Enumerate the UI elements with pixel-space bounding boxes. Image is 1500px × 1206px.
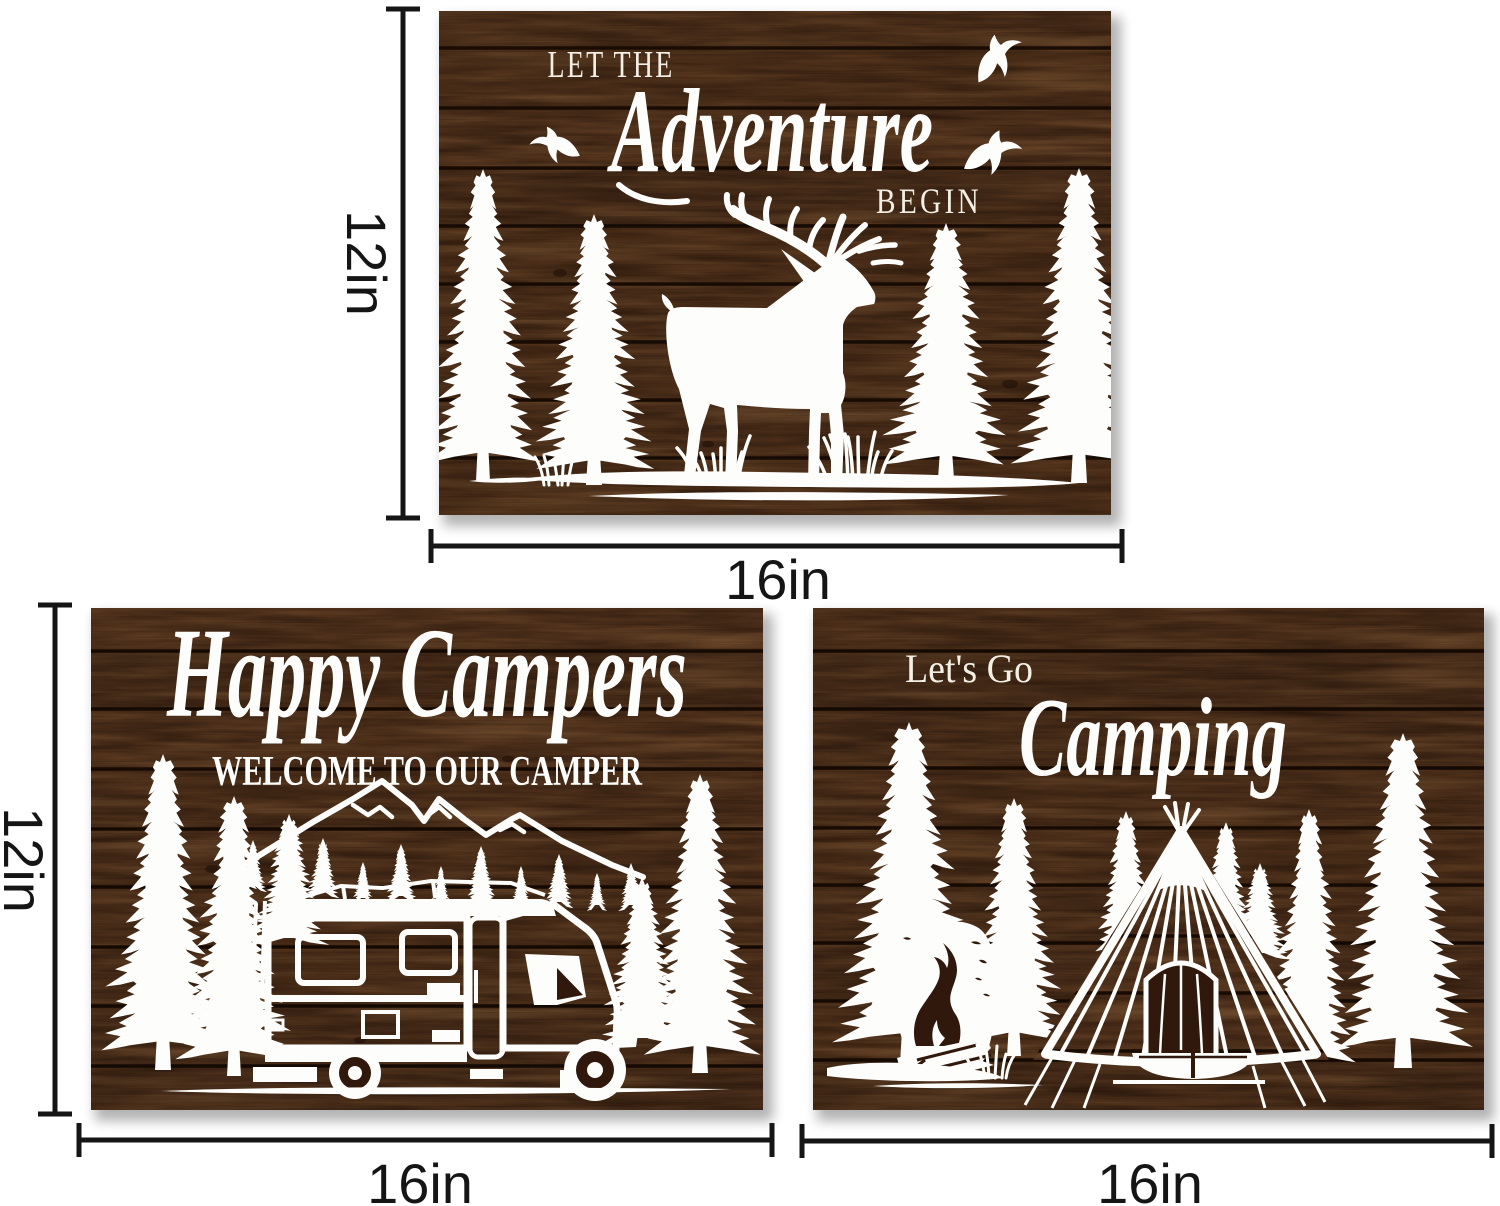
svg-text:Camping: Camping [1019,676,1287,800]
svg-text:Happy Campers: Happy Campers [166,602,687,744]
svg-text:12in: 12in [335,210,398,316]
svg-text:WELCOME TO OUR CAMPER: WELCOME TO OUR CAMPER [212,749,642,795]
svg-text:BEGIN: BEGIN [876,181,982,221]
svg-text:Adventure: Adventure [607,64,933,197]
svg-text:16in: 16in [367,1152,473,1206]
svg-text:12in: 12in [0,807,55,913]
svg-text:16in: 16in [1097,1152,1203,1206]
svg-text:16in: 16in [725,548,831,611]
svg-text:Let's Go: Let's Go [905,646,1033,691]
